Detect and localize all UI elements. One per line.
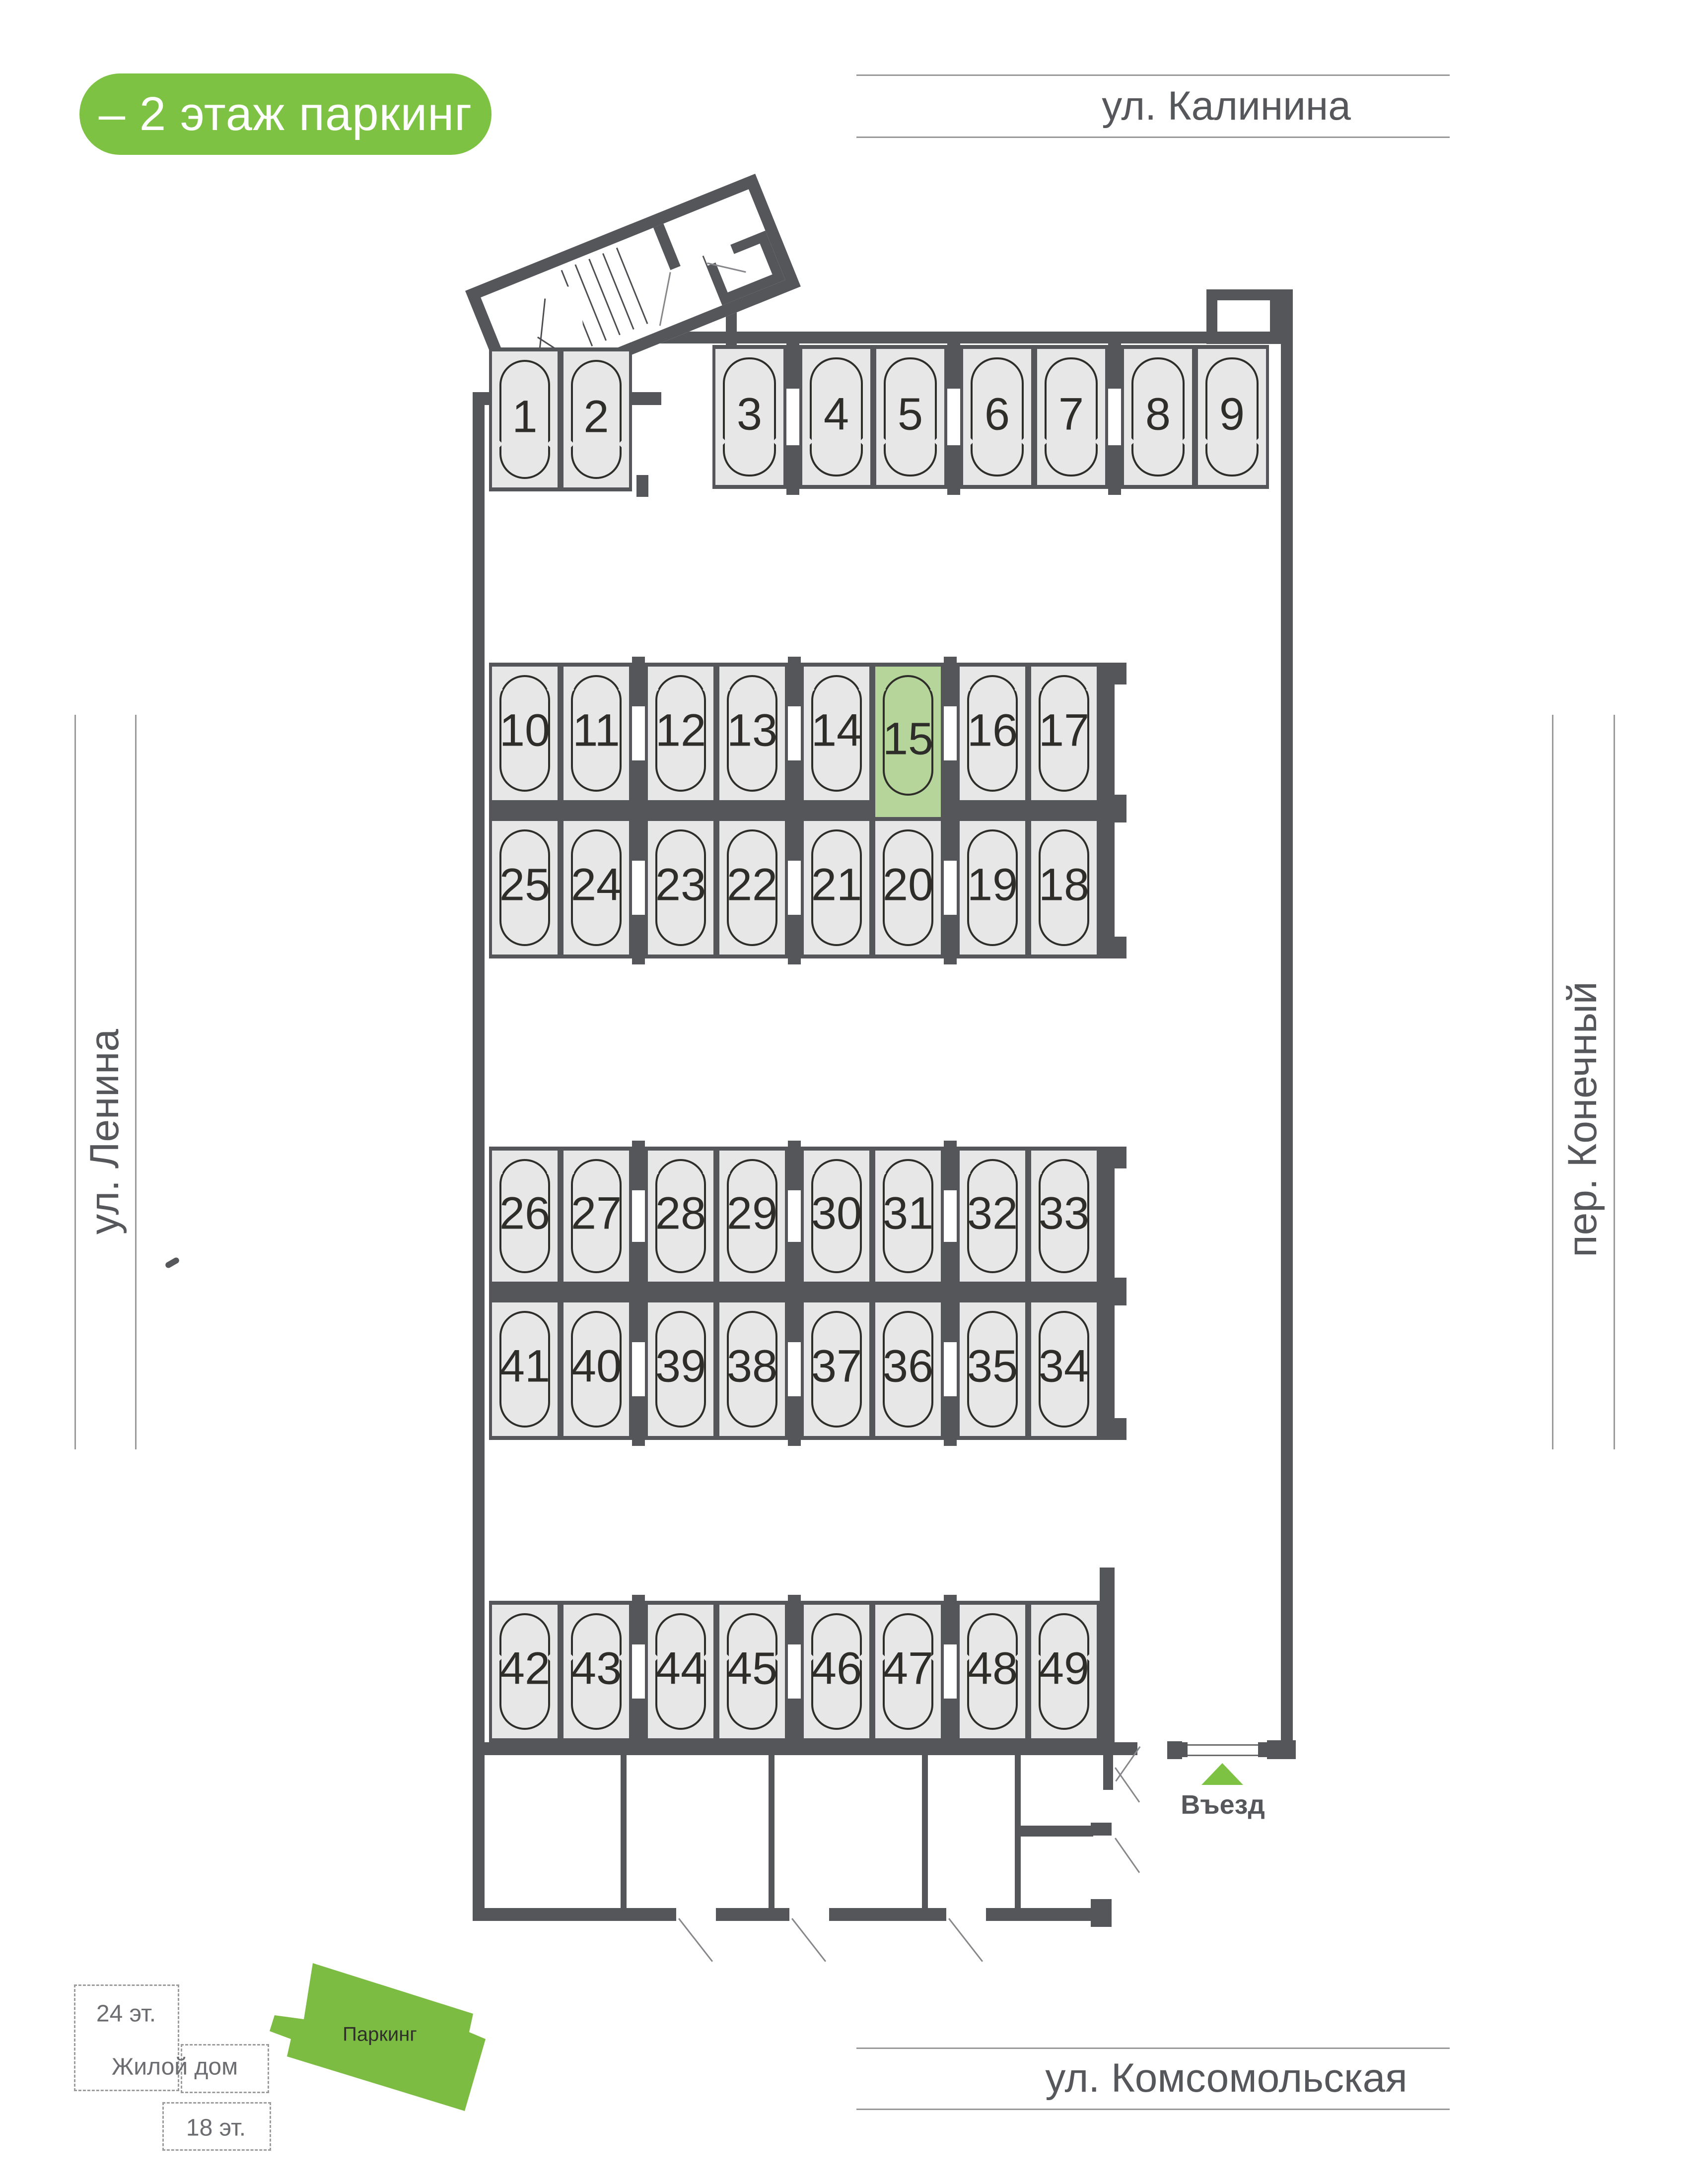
spot-number: 36 xyxy=(875,1341,941,1393)
spot-number: 8 xyxy=(1124,388,1192,440)
parking-spot-7[interactable]: 7 xyxy=(1034,345,1108,489)
column-pillar xyxy=(632,1595,645,1644)
car-notch xyxy=(858,1423,867,1432)
car-notch xyxy=(547,941,556,950)
room-wall xyxy=(1015,1755,1021,1908)
spot-number: 19 xyxy=(960,859,1025,911)
column-pillar xyxy=(944,1242,957,1292)
car-notch xyxy=(618,1423,627,1432)
wall-nub xyxy=(1115,663,1126,684)
parking-spot-38[interactable]: 38 xyxy=(716,1298,788,1440)
spot-number: 15 xyxy=(875,713,941,765)
gate-pillar-right xyxy=(1267,1740,1296,1759)
minimap-label-building: Жилой дом xyxy=(112,2053,238,2081)
wall-bottom xyxy=(473,1908,676,1921)
minimap-label-18: 18 эт. xyxy=(186,2115,246,2142)
spot-number: 3 xyxy=(715,388,783,440)
parking-spot-6[interactable]: 6 xyxy=(960,345,1034,489)
column-pillar xyxy=(788,811,801,861)
parking-spot-42[interactable]: 42 xyxy=(489,1601,561,1742)
parking-spot-33[interactable]: 33 xyxy=(1028,1147,1100,1286)
car-notch xyxy=(703,1423,711,1432)
column-pillar xyxy=(944,915,957,964)
spot-number: 21 xyxy=(804,859,869,911)
shaft-interior xyxy=(1217,300,1270,332)
gate-cap xyxy=(1258,1742,1267,1757)
spot-number: 32 xyxy=(960,1187,1025,1239)
spot-number: 24 xyxy=(563,859,629,911)
wall-bottom-inner xyxy=(473,1742,1137,1755)
column-pillar xyxy=(944,1141,957,1190)
column-pillar xyxy=(944,1293,957,1342)
column-pillar xyxy=(788,915,801,964)
door-swing xyxy=(659,272,671,326)
car-notch xyxy=(1086,941,1095,950)
minimap-label-24: 24 эт. xyxy=(96,2000,156,2028)
parking-spot-44[interactable]: 44 xyxy=(645,1601,716,1742)
wall-block-a xyxy=(489,804,1116,817)
wall-nub xyxy=(1115,1278,1126,1305)
car-notch xyxy=(961,1423,970,1432)
column-pillar xyxy=(788,760,801,810)
stair-tread xyxy=(616,248,648,324)
floor-badge[interactable]: – 2 этаж паркинг xyxy=(79,73,492,155)
spot-number: 13 xyxy=(719,705,785,757)
column-pillar xyxy=(632,657,645,706)
parking-spot-19[interactable]: 19 xyxy=(957,817,1028,958)
car-notch xyxy=(721,1423,730,1432)
column-pillar xyxy=(944,811,957,861)
spot-number: 12 xyxy=(648,705,713,757)
spot-number: 22 xyxy=(719,859,785,911)
parking-spot-11[interactable]: 11 xyxy=(561,663,632,804)
spot-number: 1 xyxy=(492,391,558,443)
parking-spot-25[interactable]: 25 xyxy=(489,817,561,958)
car-notch xyxy=(930,941,939,950)
column-pillar xyxy=(1108,445,1121,495)
car-notch xyxy=(774,1423,783,1432)
parking-spot-14[interactable]: 14 xyxy=(801,663,872,804)
wall-nub xyxy=(1115,1147,1126,1168)
spot-number: 30 xyxy=(804,1187,869,1239)
parking-spot-2[interactable]: 2 xyxy=(561,347,632,491)
car-notch xyxy=(721,941,730,950)
parking-spot-45[interactable]: 45 xyxy=(716,1601,788,1742)
parking-floor-plan: – 2 этаж паркинг ул. Калинина ул. Комсом… xyxy=(0,0,1688,2184)
spot-number: 17 xyxy=(1031,705,1097,757)
wall-top xyxy=(650,332,1293,343)
street-line xyxy=(856,2109,1450,2110)
door-swing xyxy=(1115,1838,1140,1873)
spot-number: 42 xyxy=(492,1643,558,1695)
parking-spot-46[interactable]: 46 xyxy=(801,1601,872,1742)
room-wall xyxy=(769,1755,774,1908)
car-notch xyxy=(547,1423,556,1432)
street-line xyxy=(1614,715,1615,1449)
parking-spot-30[interactable]: 30 xyxy=(801,1147,872,1286)
spot-number: 41 xyxy=(492,1341,558,1393)
parking-spot-34[interactable]: 34 xyxy=(1028,1298,1100,1440)
street-line xyxy=(1552,715,1553,1449)
entrance-arrow-icon xyxy=(1201,1763,1243,1785)
parking-spot-49[interactable]: 49 xyxy=(1028,1601,1100,1742)
parking-spot-3[interactable]: 3 xyxy=(712,345,786,489)
wall-nub xyxy=(1115,795,1126,822)
spot-number: 39 xyxy=(648,1341,713,1393)
parking-spot-39[interactable]: 39 xyxy=(645,1298,716,1440)
gate-cap xyxy=(1179,1742,1188,1757)
spot-number: 4 xyxy=(802,388,870,440)
parking-spot-13[interactable]: 13 xyxy=(716,663,788,804)
parking-spot-5[interactable]: 5 xyxy=(873,345,947,489)
wall-block-b xyxy=(489,1286,1116,1298)
parking-spot-15[interactable]: 15 xyxy=(872,663,944,818)
spot-number: 34 xyxy=(1031,1341,1097,1393)
column-pillar xyxy=(788,1242,801,1292)
street-label-bottom: ул. Комсомольская xyxy=(1045,2055,1407,2102)
wall-bottom xyxy=(829,1908,946,1921)
parking-spot-27[interactable]: 27 xyxy=(561,1147,632,1286)
minimap-parking-shape xyxy=(258,1951,506,2169)
street-label-top: ул. Калинина xyxy=(1102,83,1351,130)
parking-spot-21[interactable]: 21 xyxy=(801,817,872,958)
car-notch xyxy=(1033,941,1042,950)
column-pillar xyxy=(788,657,801,706)
parking-spot-20[interactable]: 20 xyxy=(872,817,944,958)
spot-number: 43 xyxy=(563,1643,629,1695)
spot-number: 47 xyxy=(875,1643,941,1695)
car-notch xyxy=(805,941,814,950)
spot-number: 35 xyxy=(960,1341,1025,1393)
car-notch xyxy=(649,941,658,950)
column-pillar xyxy=(947,339,960,389)
car-notch xyxy=(493,941,502,950)
spot-number: 2 xyxy=(563,391,629,443)
room-wall xyxy=(922,1755,928,1908)
spot-number: 37 xyxy=(804,1341,869,1393)
spot-number: 11 xyxy=(563,705,629,757)
wall-bottom xyxy=(986,1908,1109,1921)
car-notch xyxy=(618,941,627,950)
car-notch xyxy=(493,1423,502,1432)
car-notch xyxy=(703,941,711,950)
parking-spot-17[interactable]: 17 xyxy=(1028,663,1100,804)
parking-spot-32[interactable]: 32 xyxy=(957,1147,1028,1286)
stair-tread xyxy=(588,259,621,335)
car-notch xyxy=(805,1423,814,1432)
column-pillar xyxy=(947,445,960,495)
spot-number: 10 xyxy=(492,705,558,757)
car-notch xyxy=(774,941,783,950)
car-notch xyxy=(565,941,574,950)
car-notch xyxy=(877,941,886,950)
column-pillar xyxy=(788,1141,801,1190)
parking-spot-23[interactable]: 23 xyxy=(645,817,716,958)
wall-cap xyxy=(1100,1568,1115,1742)
parking-spot-4[interactable]: 4 xyxy=(799,345,873,489)
spot-number: 5 xyxy=(876,388,944,440)
spot-number: 20 xyxy=(875,859,941,911)
column-pillar xyxy=(786,445,799,495)
car-notch xyxy=(1086,1423,1095,1432)
wall-nub xyxy=(1115,1418,1126,1440)
room-wall xyxy=(1103,1755,1113,1790)
parking-spot-29[interactable]: 29 xyxy=(716,1147,788,1286)
column-pillar xyxy=(944,1699,957,1748)
parking-spot-43[interactable]: 43 xyxy=(561,1601,632,1742)
column-pillar xyxy=(944,657,957,706)
spot-number: 25 xyxy=(492,859,558,911)
car-notch xyxy=(961,941,970,950)
parking-spot-36[interactable]: 36 xyxy=(872,1298,944,1440)
parking-spot-9[interactable]: 9 xyxy=(1195,345,1269,489)
spot-number: 38 xyxy=(719,1341,785,1393)
spot-number: 16 xyxy=(960,705,1025,757)
car-notch xyxy=(565,1423,574,1432)
parking-spot-28[interactable]: 28 xyxy=(645,1147,716,1286)
door-frame xyxy=(1091,1823,1112,1836)
spot-number: 46 xyxy=(804,1643,869,1695)
spot-number: 29 xyxy=(719,1187,785,1239)
street-label-left: ул. Ленина xyxy=(81,1029,128,1234)
wall-cap xyxy=(1100,663,1115,958)
wall-left xyxy=(473,392,485,1921)
entrance-gate xyxy=(1181,1744,1265,1756)
column-pillar xyxy=(632,811,645,861)
wall-bottom xyxy=(716,1908,789,1921)
spot-number: 7 xyxy=(1037,388,1105,440)
spot-number: 33 xyxy=(1031,1187,1097,1239)
parking-spot-47[interactable]: 47 xyxy=(872,1601,944,1742)
parking-spot-31[interactable]: 31 xyxy=(872,1147,944,1286)
car-notch xyxy=(649,1423,658,1432)
car-notch xyxy=(1014,1423,1023,1432)
wall-pillar xyxy=(636,475,648,497)
spot-number: 48 xyxy=(960,1643,1025,1695)
car-notch xyxy=(1014,941,1023,950)
entrance-label: Въезд xyxy=(1181,1789,1265,1820)
wall-right xyxy=(1281,289,1293,1742)
stair-tread xyxy=(602,253,634,330)
column-pillar xyxy=(632,1699,645,1748)
spot-number: 45 xyxy=(719,1643,785,1695)
parking-spot-16[interactable]: 16 xyxy=(957,663,1028,804)
column-pillar xyxy=(944,1595,957,1644)
spot-number: 28 xyxy=(648,1187,713,1239)
room-wall xyxy=(621,1755,627,1908)
car-notch xyxy=(1033,1423,1042,1432)
parking-spot-24[interactable]: 24 xyxy=(561,817,632,958)
parking-spot-18[interactable]: 18 xyxy=(1028,817,1100,958)
minimap-label-parking: Паркинг xyxy=(343,2024,417,2046)
stair-room xyxy=(703,231,785,306)
parking-spot-35[interactable]: 35 xyxy=(957,1298,1028,1440)
car-notch xyxy=(858,941,867,950)
door-swing xyxy=(678,1918,713,1962)
street-line xyxy=(856,2047,1450,2049)
parking-spot-37[interactable]: 37 xyxy=(801,1298,872,1440)
column-pillar xyxy=(632,1396,645,1446)
column-pillar xyxy=(632,1141,645,1190)
spot-number: 27 xyxy=(563,1187,629,1239)
column-pillar xyxy=(788,1396,801,1446)
column-pillar xyxy=(632,760,645,810)
spot-number: 18 xyxy=(1031,859,1097,911)
spot-number: 26 xyxy=(492,1187,558,1239)
door-swing xyxy=(791,1918,826,1962)
column-pillar xyxy=(788,1293,801,1342)
parking-spot-1[interactable]: 1 xyxy=(489,347,561,491)
spot-number: 44 xyxy=(648,1643,713,1695)
map-tick-mark xyxy=(164,1256,180,1269)
column-pillar xyxy=(1108,339,1121,389)
column-pillar xyxy=(944,1396,957,1446)
wall-cap xyxy=(1100,1147,1115,1440)
street-label-right: пер. Конечный xyxy=(1559,981,1606,1257)
spot-number: 40 xyxy=(563,1341,629,1393)
spot-number: 23 xyxy=(648,859,713,911)
street-line xyxy=(135,715,137,1449)
column-pillar xyxy=(788,1699,801,1748)
column-pillar xyxy=(632,1242,645,1292)
room-wall xyxy=(1021,1826,1093,1837)
parking-spot-26[interactable]: 26 xyxy=(489,1147,561,1286)
column-pillar xyxy=(788,1595,801,1644)
parking-spot-12[interactable]: 12 xyxy=(645,663,716,804)
street-line xyxy=(856,136,1450,138)
parking-spot-40[interactable]: 40 xyxy=(561,1298,632,1440)
door-swing xyxy=(1115,1767,1140,1802)
column-pillar xyxy=(944,760,957,810)
spot-number: 14 xyxy=(804,705,869,757)
car-notch xyxy=(877,1423,886,1432)
spot-number: 49 xyxy=(1031,1643,1097,1695)
parking-spot-22[interactable]: 22 xyxy=(716,817,788,958)
column-pillar xyxy=(632,915,645,964)
street-line xyxy=(74,715,76,1449)
parking-spot-10[interactable]: 10 xyxy=(489,663,561,804)
parking-spot-8[interactable]: 8 xyxy=(1121,345,1195,489)
column-pillar xyxy=(632,1293,645,1342)
column-pillar xyxy=(786,339,799,389)
door-swing xyxy=(948,1918,983,1962)
street-line xyxy=(856,74,1450,76)
spot-number: 31 xyxy=(875,1187,941,1239)
wall-stub xyxy=(653,224,681,271)
spot-number: 6 xyxy=(963,388,1031,440)
parking-spot-48[interactable]: 48 xyxy=(957,1601,1028,1742)
parking-spot-41[interactable]: 41 xyxy=(489,1298,561,1440)
car-notch xyxy=(930,1423,939,1432)
wall-nub xyxy=(1115,937,1126,958)
spot-number: 9 xyxy=(1198,388,1266,440)
